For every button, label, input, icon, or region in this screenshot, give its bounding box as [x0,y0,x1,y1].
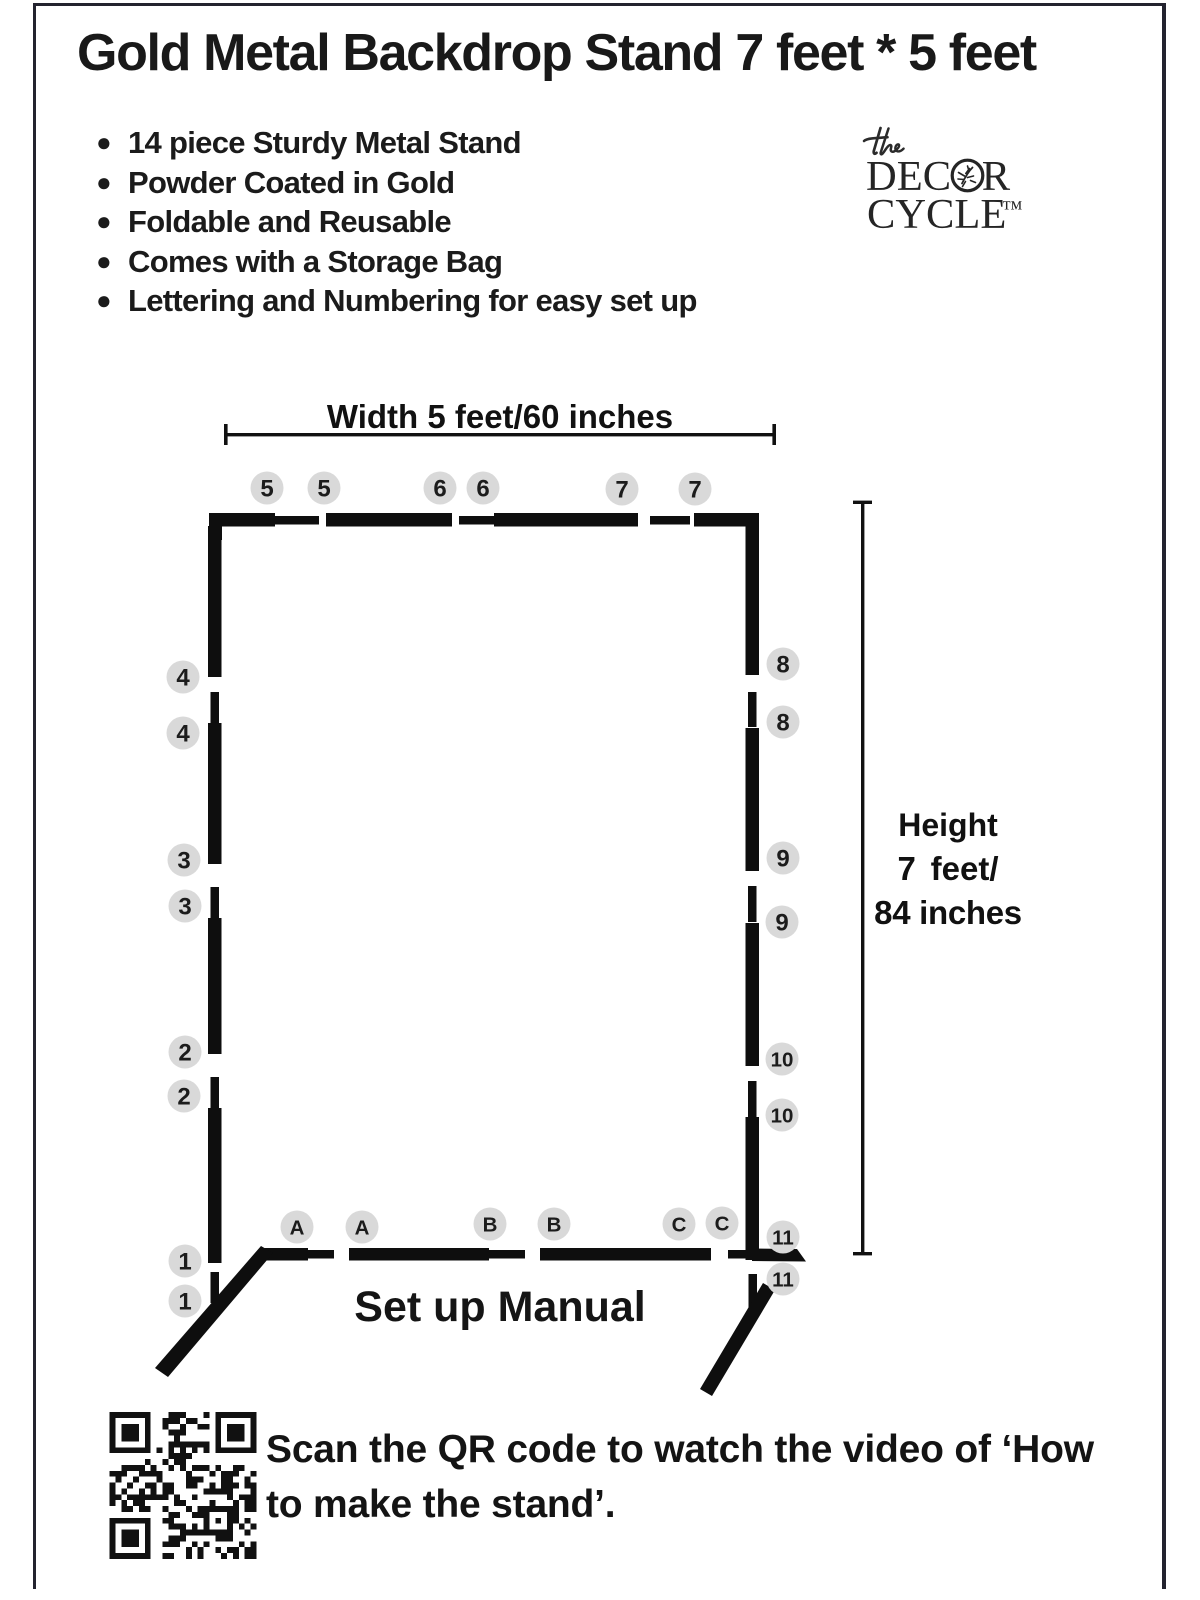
svg-text:5: 5 [260,476,273,503]
svg-text:11: 11 [772,1268,794,1291]
svg-text:10: 10 [771,1048,794,1071]
svg-text:B: B [483,1213,498,1236]
svg-text:5: 5 [317,476,330,503]
svg-text:2: 2 [178,1040,191,1067]
svg-text:7: 7 [615,477,628,504]
svg-text:A: A [355,1216,370,1239]
svg-text:4: 4 [176,665,190,692]
svg-text:7: 7 [688,477,701,504]
svg-text:C: C [672,1213,687,1236]
svg-text:11: 11 [772,1226,794,1249]
svg-text:Width 5 feet/60 inches: Width 5 feet/60 inches [327,398,673,435]
svg-text:B: B [547,1213,562,1236]
svg-text:9: 9 [776,846,789,873]
svg-text:8: 8 [776,710,789,737]
svg-text:9: 9 [775,910,788,937]
svg-text:A: A [290,1216,305,1239]
svg-text:1: 1 [178,1249,191,1276]
svg-text:3: 3 [177,848,190,875]
svg-text:10: 10 [771,1104,794,1127]
svg-text:C: C [715,1212,730,1235]
svg-text:1: 1 [178,1289,191,1316]
svg-text:2: 2 [177,1084,190,1111]
svg-text:6: 6 [476,476,489,503]
svg-text:Height: Height [898,807,998,843]
svg-text:3: 3 [178,894,191,921]
svg-text:8: 8 [776,652,789,679]
svg-text:4: 4 [176,721,190,748]
svg-text:84 inches: 84 inches [874,894,1022,931]
svg-text:6: 6 [433,476,446,503]
svg-text:7 feet/: 7 feet/ [897,850,998,887]
